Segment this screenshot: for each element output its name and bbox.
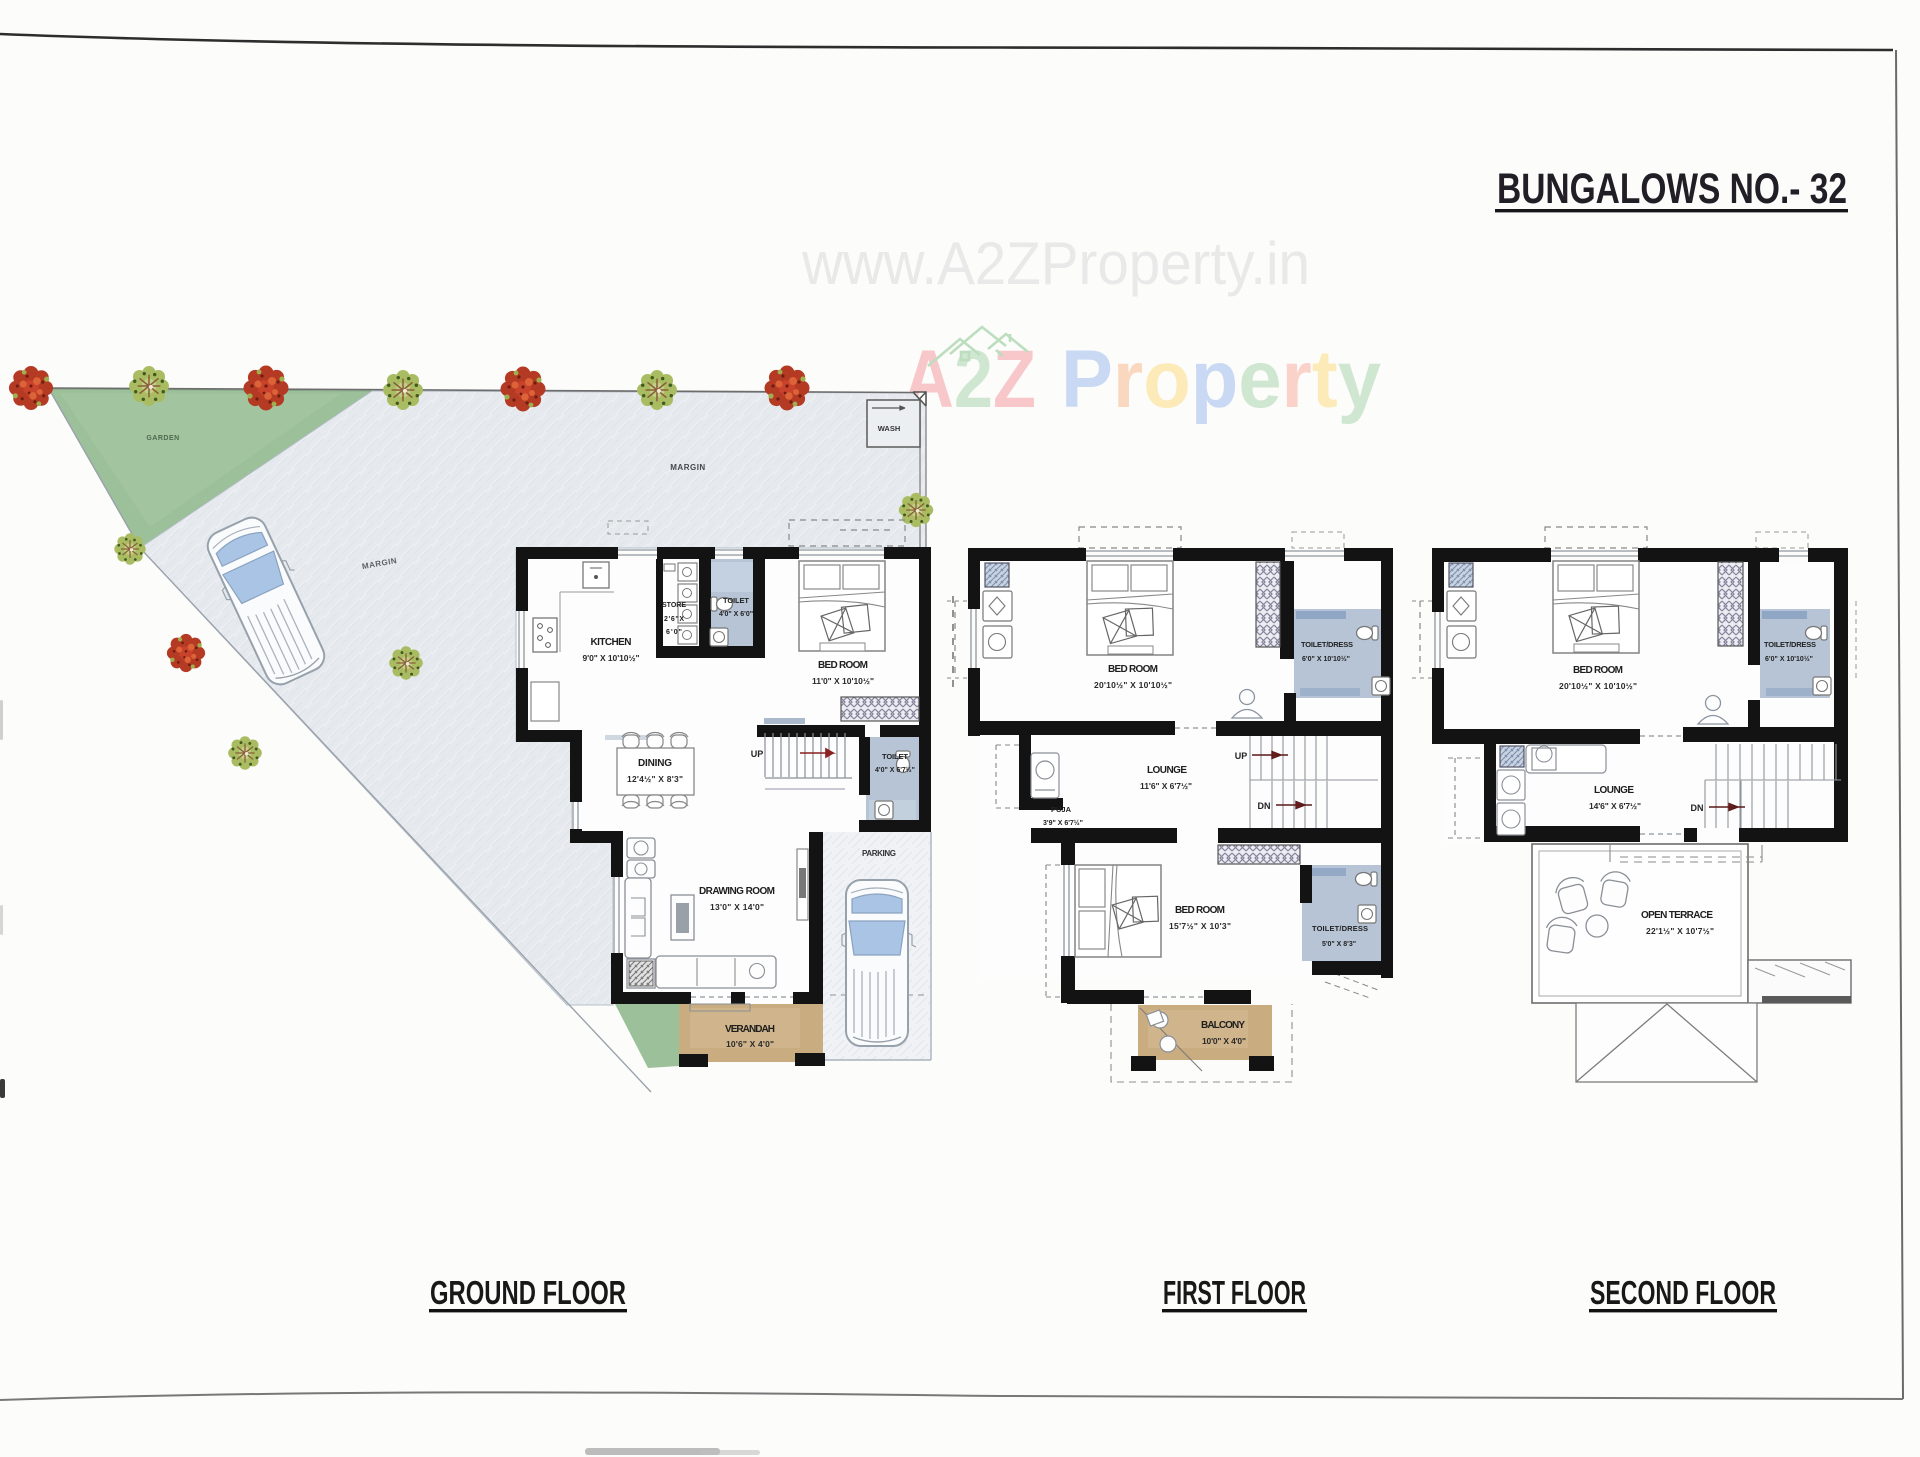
svg-text:DRAWING ROOM: DRAWING ROOM	[699, 886, 775, 897]
svg-text:TOILET: TOILET	[882, 752, 908, 761]
svg-text:TOILET: TOILET	[723, 596, 749, 605]
svg-text:14'6" X 6'7½": 14'6" X 6'7½"	[1589, 801, 1641, 811]
svg-text:STORE: STORE	[662, 602, 686, 609]
svg-text:20'10½" X 10'10½": 20'10½" X 10'10½"	[1559, 681, 1637, 691]
svg-text:9'0" X 10'10½": 9'0" X 10'10½"	[583, 653, 640, 663]
svg-text:LOUNGE: LOUNGE	[1594, 785, 1634, 796]
svg-text:3'9" X 6'7½": 3'9" X 6'7½"	[1043, 819, 1083, 827]
svg-text:OPEN TERRACE: OPEN TERRACE	[1641, 910, 1713, 921]
svg-text:UP: UP	[1235, 751, 1248, 761]
svg-text:LOUNGE: LOUNGE	[1147, 765, 1187, 776]
svg-text:10'0" X 4'0": 10'0" X 4'0"	[1202, 1036, 1246, 1046]
svg-text:TOILET/DRESS: TOILET/DRESS	[1764, 640, 1816, 649]
svg-text:12'4½" X 8'3": 12'4½" X 8'3"	[627, 774, 683, 784]
svg-text:BED ROOM: BED ROOM	[1108, 664, 1158, 675]
svg-text:WASH: WASH	[878, 424, 901, 433]
svg-text:20'10½" X 10'10½": 20'10½" X 10'10½"	[1094, 680, 1172, 690]
svg-text:GROUND FLOOR: GROUND FLOOR	[430, 1274, 626, 1311]
svg-text:2'6"X: 2'6"X	[664, 616, 684, 623]
svg-text:22'1½" X 10'7½": 22'1½" X 10'7½"	[1646, 926, 1714, 936]
svg-text:PARKING: PARKING	[862, 849, 896, 858]
svg-text:11'6" X 6'7½": 11'6" X 6'7½"	[1140, 781, 1192, 791]
svg-text:15'7½" X 10'3": 15'7½" X 10'3"	[1169, 921, 1231, 931]
svg-text:BED ROOM: BED ROOM	[1573, 665, 1623, 676]
svg-text:DN: DN	[1691, 803, 1704, 813]
svg-text:UP: UP	[751, 749, 764, 759]
svg-text:4'0" X 6'7½": 4'0" X 6'7½"	[875, 766, 915, 774]
svg-text:PUJA: PUJA	[1051, 805, 1072, 814]
svg-text:13'0" X 14'0": 13'0" X 14'0"	[710, 902, 764, 912]
svg-text:BALCONY: BALCONY	[1201, 1020, 1245, 1031]
svg-text:4'0" X 6'0": 4'0" X 6'0"	[719, 611, 753, 618]
svg-text:TOILET/DRESS: TOILET/DRESS	[1301, 640, 1353, 649]
svg-text:DINING: DINING	[638, 758, 672, 769]
svg-text:6'0": 6'0"	[666, 629, 682, 636]
svg-text:KITCHEN: KITCHEN	[591, 637, 632, 648]
svg-text:6'0" X 10'10½": 6'0" X 10'10½"	[1765, 655, 1813, 663]
svg-text:BED ROOM: BED ROOM	[1175, 905, 1225, 916]
svg-text:10'6" X 4'0": 10'6" X 4'0"	[726, 1039, 774, 1049]
svg-text:GARDEN: GARDEN	[146, 435, 179, 442]
svg-text:TOILET/DRESS: TOILET/DRESS	[1312, 924, 1368, 933]
svg-text:www.A2ZProperty.in: www.A2ZProperty.in	[801, 230, 1310, 297]
svg-text:11'0" X 10'10½": 11'0" X 10'10½"	[812, 676, 874, 686]
svg-text:SECOND FLOOR: SECOND FLOOR	[1590, 1274, 1776, 1311]
svg-text:5'0" X 8'3": 5'0" X 8'3"	[1322, 941, 1356, 948]
svg-text:MARGIN: MARGIN	[670, 463, 705, 472]
svg-text:BED ROOM: BED ROOM	[818, 660, 868, 671]
svg-text:FIRST FLOOR: FIRST FLOOR	[1163, 1274, 1306, 1311]
svg-text:VERANDAH: VERANDAH	[725, 1024, 775, 1035]
svg-text:BUNGALOWS NO.- 32: BUNGALOWS NO.- 32	[1497, 165, 1847, 213]
svg-text:6'0" X 10'10½": 6'0" X 10'10½"	[1302, 655, 1350, 663]
svg-text:DN: DN	[1258, 801, 1271, 811]
svg-text:Property: Property	[1061, 334, 1381, 425]
